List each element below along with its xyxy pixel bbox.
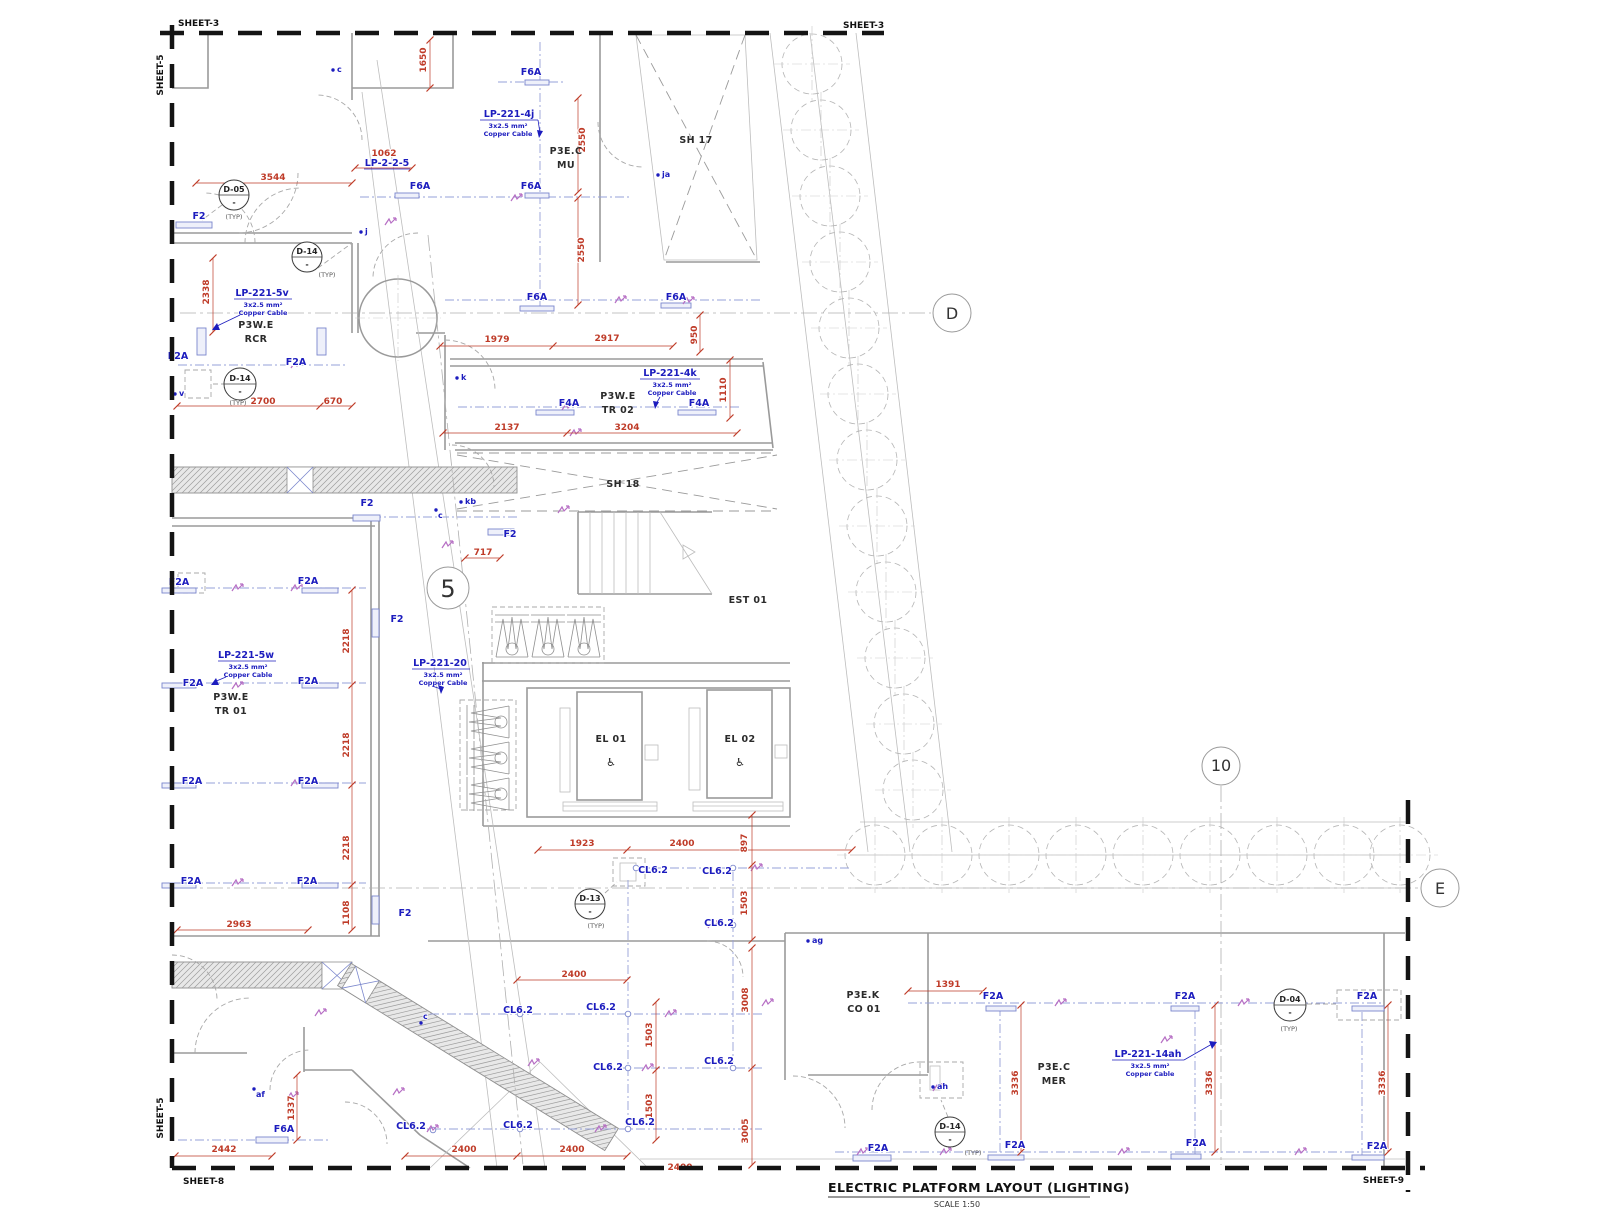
room-label-rcr: RCR [245, 334, 268, 345]
fixture-label-cl62: CL6.2 [503, 1120, 533, 1131]
fixture-label-f2a: F2A [1367, 1141, 1388, 1152]
device-label: D-13 [579, 894, 600, 903]
fixture-label-f2a: F2A [286, 357, 307, 368]
sheet-label-left-bottom: SHEET-5 [156, 1097, 166, 1138]
device-sub: - [238, 387, 241, 396]
grid-label-d: D [946, 304, 958, 323]
dim-2400-d: 2400 [559, 1145, 584, 1155]
circuit-size: 3x2.5 mm² [229, 663, 268, 671]
fixture-label-f2a: F2A [298, 676, 319, 687]
grid-label-10: 10 [1211, 756, 1231, 775]
dim-1337: 1337 [287, 1095, 297, 1120]
device-tag-d14-a: D-14 - (TYP) [292, 242, 335, 279]
fixture-label-f2a: F2A [868, 1143, 889, 1154]
stairs-est01 [578, 512, 712, 594]
sheet-label-left-top: SHEET-5 [156, 54, 166, 95]
circuit-callout-lp-221-5w: LP-221-5w 3x2.5 mm² Copper Cable [211, 650, 276, 685]
room-label-el02: EL 02 [724, 734, 755, 745]
grid-bubble-e: E [1421, 869, 1459, 907]
dim-3544: 3544 [260, 173, 285, 183]
room-label-sh18: SH 18 [606, 479, 639, 490]
fixture-label-cl62: CL6.2 [704, 1056, 734, 1067]
device-tag-d04: D-04 - (TYP) [1274, 989, 1306, 1033]
elevator-block [527, 688, 790, 817]
room-label-mu: MU [557, 160, 575, 171]
fixture-label-f2a: F2A [181, 876, 202, 887]
point-label-c: c [337, 65, 342, 74]
fixture-label-f2a: F2A [298, 576, 319, 587]
dim-3005: 3005 [741, 1118, 751, 1143]
circuit-callout-lp-221-4j: LP-221-4j 3x2.5 mm² Copper Cable [480, 109, 543, 138]
room-label-rcr-sys: P3W.E [238, 320, 273, 331]
circuit-size: 3x2.5 mm² [1131, 1062, 1170, 1070]
point-label-c: c [438, 511, 443, 520]
point-label-v: v [179, 389, 185, 398]
point-label-af: af [256, 1090, 265, 1099]
pile-band-diagonal [770, 26, 952, 852]
circuit-type: Copper Cable [1126, 1070, 1175, 1078]
dim-2963: 2963 [226, 920, 251, 930]
dim-2218-b: 2218 [342, 732, 352, 757]
point-label-ah: ah [937, 1082, 948, 1091]
device-sub: - [232, 198, 235, 207]
fixture-label-cl62: CL6.2 [625, 1117, 655, 1128]
drawing-title: ELECTRIC PLATFORM LAYOUT (LIGHTING) [828, 1180, 1130, 1195]
grid-layer: D E 5 10 [180, 235, 1459, 1165]
circuit-type: Copper Cable [419, 679, 468, 687]
sheet-label-bottom-left: SHEET-8 [183, 1177, 224, 1187]
dim-2442: 2442 [211, 1145, 236, 1155]
fixture-label-f6a: F6A [666, 292, 687, 303]
dim-2700: 2700 [250, 397, 275, 407]
point-label-c: c [423, 1012, 428, 1021]
fixture-label-f4a: F4A [559, 398, 580, 409]
dim-1503-c: 1503 [645, 1093, 655, 1118]
sheet-match-labels: SHEET-3 SHEET-3 SHEET-5 SHEET-5 SHEET-8 … [156, 19, 1404, 1187]
drawing-scale: SCALE 1:50 [934, 1200, 980, 1209]
fixture-label-f6a: F6A [521, 181, 542, 192]
fixture-label-f2a: F2A [1175, 991, 1196, 1002]
circuit-tag: LP-221-14ah [1115, 1049, 1182, 1060]
fixture-label-cl62: CL6.2 [396, 1121, 426, 1132]
sheet-borders [160, 25, 1425, 1192]
device-typ: (TYP) [230, 399, 247, 407]
device-label: D-05 [223, 185, 245, 194]
title-block: ELECTRIC PLATFORM LAYOUT (LIGHTING) SCAL… [828, 1180, 1130, 1209]
dim-897: 897 [740, 834, 750, 853]
hatched-wall-band-lower-left [172, 962, 352, 989]
device-tag-d05: D-05 - (TYP) [219, 180, 249, 221]
dim-3336-a: 3336 [1011, 1070, 1021, 1095]
room-label-tr02: TR 02 [602, 405, 634, 416]
circuit-type: Copper Cable [484, 130, 533, 138]
wheelchair-icon: ♿ [735, 756, 745, 769]
circuit-size: 3x2.5 mm² [653, 381, 692, 389]
dim-2400-c: 2400 [451, 1145, 476, 1155]
circuit-callout-lp-221-20: LP-221-20 3x2.5 mm² Copper Cable [412, 658, 470, 694]
device-sub: - [305, 260, 308, 269]
dim-1979: 1979 [484, 335, 509, 345]
fixture-label-f6a: F6A [521, 67, 542, 78]
dim-717: 717 [474, 548, 493, 558]
point-label-kb: kb [465, 497, 476, 506]
room-label-mer-sys: P3E.C [1038, 1062, 1071, 1073]
device-tag-d13: D-13 - (TYP) [575, 889, 605, 930]
fixture-label-cl62: CL6.2 [586, 1002, 616, 1013]
circuit-callout-lp-2-2-5: LP-2-2-5 [364, 158, 410, 169]
device-typ: (TYP) [1281, 1025, 1298, 1033]
dim-670: 670 [324, 397, 343, 407]
dim-2338: 2338 [202, 279, 212, 304]
dim-1110: 1110 [719, 377, 729, 402]
circuit-tag: LP-221-20 [413, 658, 467, 669]
fixture-label-cl62: CL6.2 [702, 866, 732, 877]
fixture-label-f2a: F2A [183, 678, 204, 689]
circuit-type: Copper Cable [239, 309, 288, 317]
circuit-size: 3x2.5 mm² [244, 301, 283, 309]
fixture-label-f2a: F2A [983, 991, 1004, 1002]
fixture-label-cl62: CL6.2 [704, 918, 734, 929]
dim-3336-c: 3336 [1378, 1070, 1388, 1095]
device-sub: - [588, 907, 591, 916]
dim-950: 950 [690, 326, 700, 345]
electric-platform-layout-drawing: D E 5 10 [0, 0, 1600, 1222]
fixture-label-cl62: CL6.2 [503, 1005, 533, 1016]
circuit-callout-lp-221-14ah: LP-221-14ah 3x2.5 mm² Copper Cable [1112, 1041, 1217, 1078]
device-sub: - [948, 1135, 951, 1144]
device-label: D-14 [296, 247, 318, 256]
fixture-label-f6a: F6A [410, 181, 431, 192]
device-typ: (TYP) [965, 1149, 982, 1157]
fixture-label-f2a: F2A [1357, 991, 1378, 1002]
grid-label-e: E [1435, 879, 1445, 898]
grid-bubble-5: 5 [427, 567, 469, 609]
dim-2400-a: 2400 [669, 839, 694, 849]
fixture-label-f2a: F2A [297, 876, 318, 887]
dim-2137: 2137 [494, 423, 519, 433]
dim-1503-b: 1503 [645, 1022, 655, 1047]
device-typ: (TYP) [319, 271, 336, 279]
fixture-label-f2: F2 [503, 529, 516, 540]
pile-band-horizontal [837, 817, 1438, 893]
room-label-co-sys: P3E.K [846, 990, 879, 1001]
fixture-label-f2: F2 [390, 614, 403, 625]
waiting-seats [460, 607, 604, 811]
dim-2218-a: 2218 [342, 628, 352, 653]
dim-1503-a: 1503 [740, 890, 750, 915]
floor-plan-sheet: D E 5 10 [0, 0, 1600, 1222]
room-label-co: CO 01 [847, 1004, 881, 1015]
fixture-label-f2: F2 [192, 211, 205, 222]
point-label-ag: ag [812, 936, 823, 945]
dim-1923: 1923 [569, 839, 594, 849]
room-label-el01: EL 01 [595, 734, 626, 745]
room-label-mer: MER [1042, 1076, 1067, 1087]
circuit-type: Copper Cable [648, 389, 697, 397]
device-label: D-14 [939, 1122, 961, 1131]
fixture-label-cl62: CL6.2 [593, 1062, 623, 1073]
dim-1391: 1391 [935, 980, 960, 990]
grid-bubble-d: D [933, 294, 971, 332]
grid-bubble-10: 10 [1202, 747, 1240, 785]
dim-2917: 2917 [594, 334, 619, 344]
hatched-wall-band-diagonal [338, 963, 619, 1150]
fixture-label-f2: F2 [398, 908, 411, 919]
circuit-tag: LP-221-4j [484, 109, 534, 120]
sheet-label-top-left: SHEET-3 [178, 19, 219, 29]
fixture-label-f2a: F2A [298, 776, 319, 787]
shaft-sh17 [636, 35, 757, 260]
fixture-label-f6a: F6A [527, 292, 548, 303]
circuit-type: Copper Cable [224, 671, 273, 679]
dim-2218-c: 2218 [342, 835, 352, 860]
grid-label-5: 5 [440, 575, 455, 603]
dimension-ticks [172, 37, 1392, 1169]
fixture-label-cl62: CL6.2 [638, 865, 668, 876]
room-label-mu-sys: P3E.C [550, 146, 583, 157]
circuit-size: 3x2.5 mm² [424, 671, 463, 679]
circuit-tag: LP-221-5w [218, 650, 274, 661]
sheet-label-bottom-right: SHEET-9 [1363, 1176, 1404, 1186]
dim-2400-b: 2400 [561, 970, 586, 980]
dim-1108: 1108 [342, 900, 352, 925]
circuit-tag: LP-2-2-5 [365, 158, 410, 169]
device-sub: - [1288, 1008, 1291, 1017]
room-label-tr01-sys: P3W.E [213, 692, 248, 703]
sheet-label-top-right: SHEET-3 [843, 21, 884, 31]
fixture-label-f6a: F6A [274, 1124, 295, 1135]
fixture-label-f2a: F2A [1186, 1138, 1207, 1149]
point-label-ja: ja [661, 170, 670, 179]
dim-2550-b: 2550 [577, 237, 587, 262]
dim-1650: 1650 [419, 47, 429, 72]
circuit-tag: LP-221-4k [643, 368, 697, 379]
device-label: D-14 [229, 374, 251, 383]
room-label-sh17: SH 17 [679, 135, 712, 146]
fixture-label-f2a: F2A [182, 776, 203, 787]
point-label-j: j [364, 227, 368, 236]
room-label-est01: EST 01 [729, 595, 768, 606]
connection-point-labels: c ja j v k kb c ag ah af c [173, 65, 948, 1099]
device-typ: (TYP) [588, 922, 605, 930]
fixture-label-f4a: F4A [689, 398, 710, 409]
dim-3204: 3204 [614, 423, 639, 433]
device-typ: (TYP) [226, 213, 243, 221]
fixture-label-f2: F2 [360, 498, 373, 509]
point-label-k: k [461, 373, 467, 382]
fixture-label-f2a: F2A [1005, 1140, 1026, 1151]
device-label: D-04 [1279, 995, 1301, 1004]
dim-3008: 3008 [741, 987, 751, 1012]
dim-3336-b: 3336 [1205, 1070, 1215, 1095]
circuit-tag: LP-221-5v [235, 288, 289, 299]
room-label-tr01: TR 01 [215, 706, 247, 717]
wheelchair-icon: ♿ [606, 756, 616, 769]
hatched-wall-band-upper [172, 467, 517, 493]
circuit-size: 3x2.5 mm² [489, 122, 528, 130]
room-label-tr02-sys: P3W.E [600, 391, 635, 402]
room-labels: P3E.C MU SH 17 P3W.E RCR P3W.E TR 02 SH … [213, 135, 1070, 1087]
